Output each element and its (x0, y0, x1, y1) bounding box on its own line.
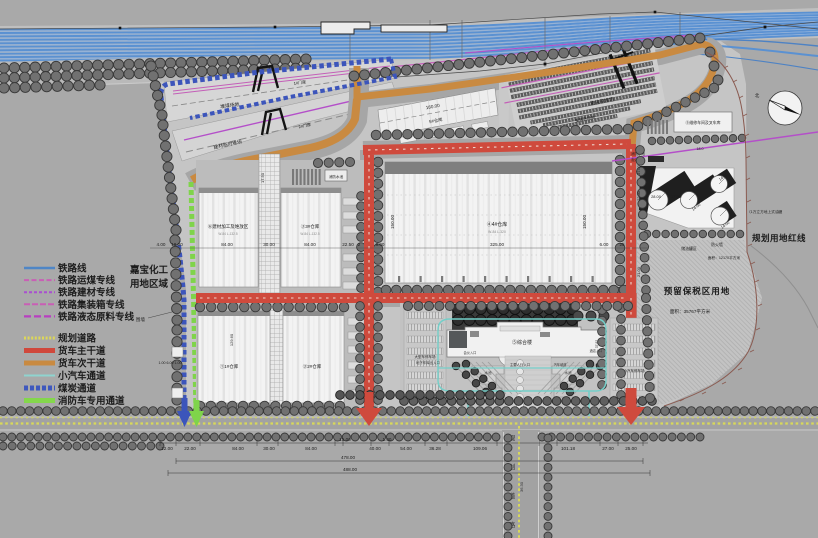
svg-text:面积：12170平方米: 面积：12170平方米 (708, 255, 741, 260)
svg-text:84.00: 84.00 (221, 242, 233, 247)
svg-text:货车次干道: 货车次干道 (57, 358, 106, 370)
svg-text:54.00: 54.00 (400, 446, 412, 451)
svg-text:货车主干道: 货车主干道 (57, 345, 106, 357)
svg-text:北: 北 (755, 92, 760, 99)
svg-text:84.00: 84.00 (305, 446, 317, 451)
svg-text:6.00: 6.00 (600, 242, 609, 247)
svg-text:酒店入口: 酒店入口 (590, 348, 603, 353)
svg-text:面积：35767平方米: 面积：35767平方米 (670, 308, 711, 315)
svg-text:84.00: 84.00 (304, 242, 316, 247)
svg-text:⑨维修车间及叉车库: ⑨维修车间及叉车库 (685, 120, 720, 125)
svg-text:129.60: 129.60 (229, 333, 234, 346)
svg-text:36.28: 36.28 (429, 446, 441, 451)
svg-text:⑥建材加工及堆放区: ⑥建材加工及堆放区 (208, 223, 249, 230)
svg-text:铁路建材专线: 铁路建材专线 (58, 287, 116, 299)
svg-text:1.00: 1.00 (383, 437, 392, 442)
svg-text:30.00: 30.00 (263, 242, 275, 247)
svg-text:煤炭通道: 煤炭通道 (58, 383, 97, 395)
svg-text:主要人行入口: 主要人行入口 (510, 362, 530, 367)
svg-text:规划道路: 规划道路 (58, 333, 97, 345)
svg-text:18.00: 18.00 (171, 242, 183, 247)
svg-text:1.00 6.00 1.00: 1.00 6.00 1.00 (159, 361, 182, 365)
svg-text:18.0: 18.0 (697, 147, 704, 151)
svg-text:15.00: 15.00 (339, 437, 351, 442)
svg-text:17.50: 17.50 (260, 172, 265, 183)
svg-text:488.00: 488.00 (343, 467, 357, 472)
svg-text:150.00: 150.00 (390, 215, 395, 229)
svg-text:2: 2 (358, 242, 361, 247)
svg-text:W-84 L-320: W-84 L-320 (488, 230, 506, 234)
svg-text:③3#仓库: ③3#仓库 (301, 223, 320, 230)
svg-text:22.50: 22.50 (342, 242, 354, 247)
svg-text:325.00: 325.00 (490, 242, 504, 247)
svg-text:40.00: 40.00 (369, 446, 381, 451)
svg-text:水池: 水池 (565, 370, 573, 375)
svg-text:用地区域: 用地区域 (129, 278, 169, 290)
svg-text:规划用地红线: 规划用地红线 (752, 233, 806, 243)
svg-text:25: 25 (619, 242, 625, 247)
svg-text:②2#仓库: ②2#仓库 (303, 363, 322, 370)
svg-text:109.06: 109.06 (473, 446, 487, 451)
svg-text:17.00: 17.00 (671, 194, 682, 199)
svg-text:铁路液态原料专线: 铁路液态原料专线 (58, 311, 135, 323)
svg-text:28.00: 28.00 (651, 194, 662, 199)
svg-text:W-84 L-132.5: W-84 L-132.5 (300, 232, 319, 236)
svg-text:27.00: 27.00 (602, 446, 614, 451)
svg-text:汽车坡道: 汽车坡道 (554, 362, 568, 367)
svg-text:铁路运煤专线: 铁路运煤专线 (58, 275, 116, 287)
svg-text:预留保税区用地: 预留保税区用地 (664, 286, 731, 296)
svg-text:④4#仓库: ④4#仓库 (487, 221, 508, 228)
svg-text:储油罐区: 储油罐区 (681, 246, 697, 251)
svg-text:小汽车停车场: 小汽车停车场 (624, 368, 645, 373)
svg-text:W-84 L-132.5: W-84 L-132.5 (218, 232, 237, 236)
svg-text:嘉宝化工: 嘉宝化工 (129, 264, 169, 276)
svg-text:铁路集装箱专线: 铁路集装箱专线 (58, 299, 125, 311)
svg-text:21.00: 21.00 (636, 266, 641, 277)
svg-text:消防水池: 消防水池 (329, 174, 344, 179)
svg-text:水池: 水池 (485, 370, 493, 375)
svg-text:25.00: 25.00 (625, 446, 637, 451)
svg-text:小汽车通道: 小汽车通道 (57, 370, 106, 382)
svg-text:36.30: 36.30 (519, 481, 524, 492)
svg-text:150.00: 150.00 (582, 215, 587, 229)
svg-text:铁路线: 铁路线 (58, 263, 87, 275)
svg-text:地下车库出入口: 地下车库出入口 (416, 360, 440, 365)
svg-text:6.00: 6.00 (376, 242, 385, 247)
svg-text:消防车专用通道: 消防车专用通道 (58, 395, 125, 407)
svg-text:101.18: 101.18 (561, 446, 575, 451)
svg-text:（1万立方地上式油罐: （1万立方地上式油罐 (747, 209, 783, 214)
svg-text:12.00: 12.00 (161, 446, 173, 451)
svg-text:⑤综合楼: ⑤综合楼 (512, 339, 532, 346)
svg-text:478.00: 478.00 (341, 455, 355, 460)
svg-text:84.00: 84.00 (232, 446, 244, 451)
svg-text:30.00: 30.00 (263, 446, 275, 451)
svg-text:防火墙: 防火墙 (711, 242, 723, 247)
svg-text:①1#仓库: ①1#仓库 (220, 363, 239, 370)
svg-text:大型车停车场: 大型车停车场 (415, 354, 436, 359)
svg-text:27.00: 27.00 (637, 165, 641, 175)
svg-text:4.00: 4.00 (157, 242, 166, 247)
svg-text:围墙: 围墙 (136, 316, 146, 323)
svg-text:22.50: 22.50 (637, 191, 641, 201)
svg-text:22.00: 22.00 (184, 446, 196, 451)
svg-text:会仪入口: 会仪入口 (464, 350, 477, 355)
